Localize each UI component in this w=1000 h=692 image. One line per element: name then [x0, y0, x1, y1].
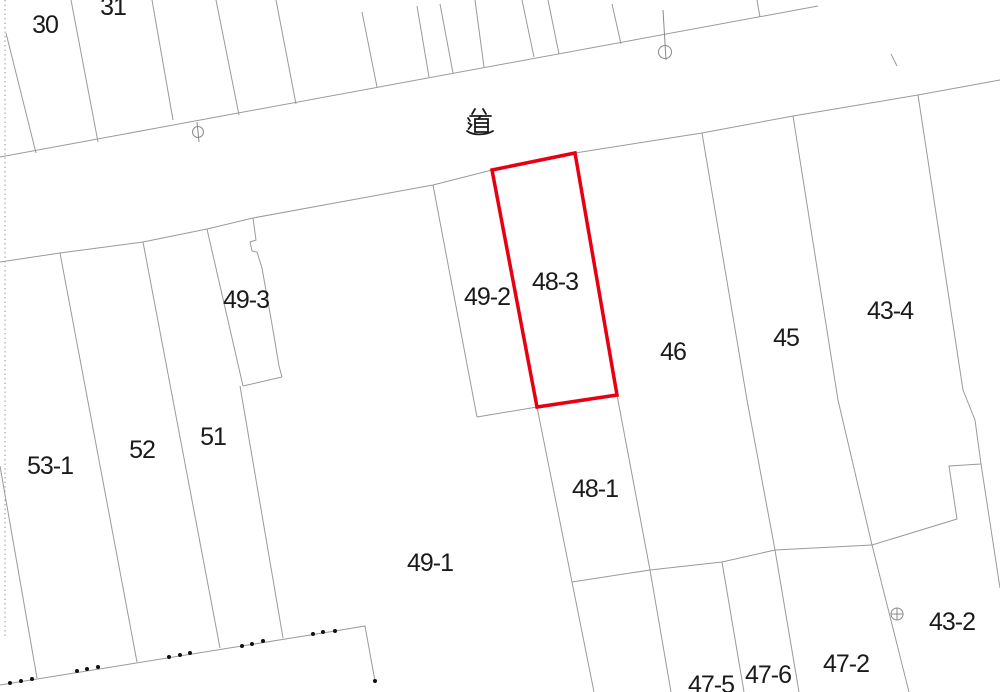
- boundary-parcel-46-45: [702, 133, 799, 692]
- boundary-upper-parcel-line-6: [362, 12, 377, 87]
- road-label: [467, 109, 493, 134]
- boundary-parcel-43-4-east: [918, 95, 1000, 588]
- boundary-surveyed-edge: [0, 626, 375, 685]
- boundary-upper-parcel-line-9: [475, 0, 484, 67]
- parcel-label-52: 52: [129, 436, 155, 464]
- survey-point-dot: [19, 679, 23, 683]
- road-kanji-stroke: [468, 118, 470, 121]
- survey-point-dot: [178, 653, 182, 657]
- parcel-label-46: 46: [660, 338, 686, 366]
- boundary-upper-parcel-line-11: [548, 0, 559, 54]
- boundary-upper-parcel-line-13: [757, 0, 760, 17]
- boundary-upper-parcel-line-2: [71, 0, 98, 142]
- parcel-label-43-4: 43-4: [867, 297, 914, 325]
- road-kanji-stroke: [475, 119, 488, 132]
- parcel-label-43-2: 43-2: [929, 608, 975, 636]
- parcel-label-47-2: 47-2: [823, 650, 869, 678]
- parcel-label-30: 30: [32, 11, 58, 39]
- parcel-label-49-2: 49-2: [464, 283, 510, 311]
- parcel-label-49-3: 49-3: [223, 286, 269, 314]
- boundary-parcel-53-1-west: [0, 466, 37, 678]
- road-kanji-stroke: [469, 123, 472, 129]
- survey-point-dot: [75, 669, 79, 673]
- survey-point-dot: [333, 629, 337, 633]
- survey-point-dot: [96, 665, 100, 669]
- parcel-label-48-1: 48-1: [572, 475, 618, 503]
- survey-point-dot: [240, 644, 244, 648]
- survey-point-dot: [8, 681, 12, 685]
- parcel-label-51: 51: [200, 423, 226, 451]
- map-svg: 303149-349-248-3464543-453-1525149-148-1…: [0, 0, 1000, 692]
- parcel-label-47-6: 47-6: [745, 661, 791, 689]
- parcel-label-53-1: 53-1: [27, 452, 73, 480]
- boundary-upper-parcel-line-12: [612, 4, 621, 44]
- boundary-upper-parcel-line-4: [216, 0, 239, 115]
- boundary-road-inner-tick: [891, 54, 897, 66]
- survey-point-dot: [30, 677, 34, 681]
- boundary-upper-parcel-line-1: [6, 33, 36, 153]
- boundary-parcel-49-3-bottom: [243, 377, 282, 386]
- road-kanji-stroke: [483, 109, 486, 114]
- boundary-road-bottom-edge-east: [575, 80, 1000, 153]
- boundary-parcel-45-43-4: [793, 116, 909, 692]
- survey-point-dot: [261, 639, 265, 643]
- survey-point-dot: [188, 651, 192, 655]
- boundary-parcel-48-1-east: [617, 395, 671, 692]
- survey-point-dot: [311, 632, 315, 636]
- boundary-upper-parcel-line-5: [276, 0, 296, 104]
- boundary-parcel-51-49-1: [240, 386, 283, 638]
- cadastral-map: 303149-349-248-3464543-453-1525149-148-1…: [0, 0, 1000, 692]
- boundary-upper-parcel-line-8: [440, 4, 453, 73]
- survey-point-dot: [85, 667, 89, 671]
- boundary-parcel-49-2-bottom: [477, 407, 537, 417]
- boundary-parcel-49-1-48-1: [537, 407, 594, 692]
- survey-point-dot: [321, 630, 325, 634]
- survey-point-dot: [167, 655, 171, 659]
- parcel-label-48-3: 48-3: [532, 268, 578, 296]
- boundary-block-47-top: [572, 519, 957, 582]
- utility-pole-marker-line: [197, 122, 199, 142]
- road-kanji-stroke: [472, 109, 475, 114]
- parcel-label-45: 45: [773, 324, 799, 352]
- parcel-label-47-5: 47-5: [688, 671, 734, 692]
- boundary-road-bottom-edge-west: [0, 170, 492, 262]
- survey-point-dot: [250, 642, 254, 646]
- boundary-upper-parcel-line-3: [152, 0, 173, 120]
- parcel-label-31: 31: [100, 0, 126, 21]
- boundary-parcel-43-4-notch: [949, 464, 981, 519]
- boundary-upper-parcel-line-10: [522, 0, 534, 57]
- survey-point-dot: [373, 679, 377, 683]
- boundary-upper-parcel-line-7: [417, 6, 429, 77]
- parcel-label-49-1: 49-1: [407, 549, 453, 577]
